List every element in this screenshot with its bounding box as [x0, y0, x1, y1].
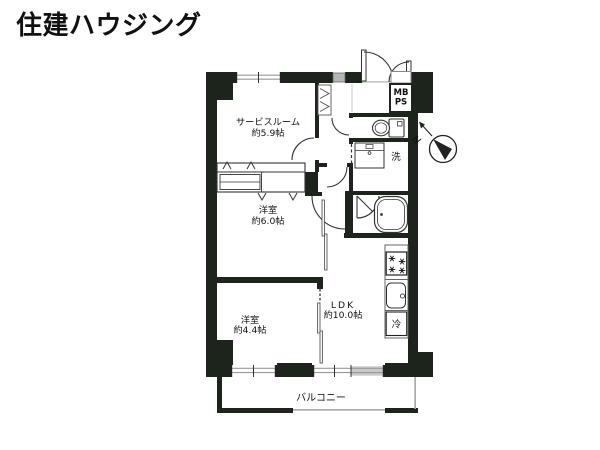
bathtub-icon: [375, 197, 408, 233]
ldk-size-label: 約10.0帖: [324, 309, 363, 321]
kitchen-counter: 冷: [385, 245, 408, 338]
meter-box-pipe-space: MB PS: [390, 72, 412, 113]
wall-top-1: [217, 72, 235, 83]
wall-partition-stub: [317, 283, 323, 289]
sink-icon: [387, 283, 406, 308]
hanger-mark-icon: [258, 193, 266, 200]
wall-balcony-bottom-right: [385, 408, 418, 413]
wall-hall-end-left: [318, 163, 327, 167]
wall-toilet-top: [353, 113, 408, 117]
shoe-cabinet-icon: [318, 85, 331, 115]
wall-bathroom-top: [353, 191, 408, 195]
wall-balcony-left: [217, 377, 222, 413]
closet-icon: [217, 162, 305, 200]
ps-label: PS: [395, 98, 407, 108]
wall-top-3: [345, 72, 362, 83]
floor-plan-page: MB PS: [0, 0, 600, 450]
refrigerator-label: 冷: [392, 319, 402, 331]
wall-bottom-pillar: [277, 363, 312, 377]
hallway-door-arc: [327, 167, 347, 187]
wall-washroom-top: [353, 138, 408, 142]
logo: 住建ハウジング: [16, 10, 202, 41]
wall-bathroom-bottom: [344, 233, 408, 238]
western-room-6-name-label: 洋室: [259, 204, 277, 216]
toilet-door-arc: [332, 118, 349, 135]
sliding-partition-w6-ldk: [322, 200, 327, 270]
wall-top-2: [282, 72, 333, 83]
wall-bathroom-left: [345, 191, 353, 238]
wall-vent-block: [333, 73, 345, 82]
wall-room-divider: [206, 277, 323, 283]
hanger-mark-icon: [289, 193, 297, 200]
ldk-door-arc: [312, 196, 345, 229]
wall-right: [408, 72, 418, 373]
refrigerator-space: 冷: [386, 312, 407, 336]
serviceroom-size-label: 約5.9帖: [252, 127, 285, 139]
mb-label: MB: [394, 88, 409, 98]
toilet-icon: [373, 119, 405, 137]
wall-bottom-1: [217, 365, 230, 377]
balcony-label: バルコニー: [296, 392, 346, 404]
western-room-4-size-label: 約4.4帖: [234, 324, 267, 336]
wall-bottom-2: [385, 363, 433, 377]
wall-left: [206, 72, 217, 377]
wall-ldk-stub: [305, 192, 322, 196]
floor-plan: MB PS: [0, 0, 600, 450]
western-room-6-size-label: 約6.0帖: [252, 215, 285, 227]
window-top: [235, 72, 282, 83]
washing-machine-label: 洗: [391, 151, 401, 163]
serviceroom-name-label: サービスルーム: [236, 117, 300, 128]
wall-balcony-bottom-left: [217, 408, 293, 413]
window-bottom-ldk: [312, 365, 385, 377]
sliding-partition-w4-ldk: [318, 289, 323, 363]
serviceroom-door-arc: [292, 138, 314, 160]
wall-washroom-left-upper: [349, 138, 353, 144]
window-bottom-west: [230, 365, 277, 377]
wall-toilet-left-upper: [349, 113, 353, 118]
wall-washroom-left-lower: [349, 166, 353, 191]
stove-icon: [386, 252, 407, 275]
washbasin-icon: [355, 143, 384, 168]
